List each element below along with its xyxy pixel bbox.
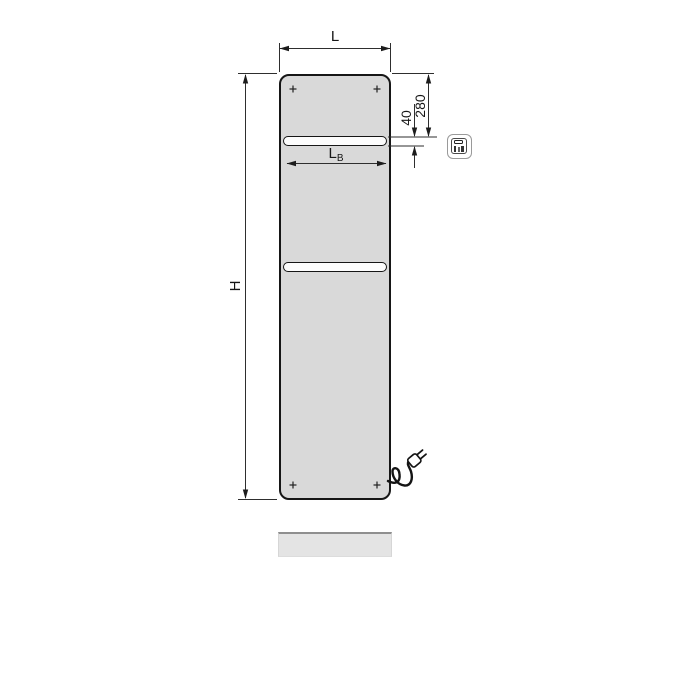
electric-plug-icon-pin-left	[454, 146, 457, 152]
arrow-down	[243, 490, 248, 500]
label-40: 40	[397, 105, 415, 131]
electric-plug-icon	[447, 134, 472, 159]
label-bar-length-subscript: B	[337, 153, 344, 164]
arrow-up	[426, 74, 431, 84]
arrow-left	[280, 46, 290, 51]
arrow-down	[426, 128, 431, 138]
dimension-width-L	[280, 43, 391, 72]
arrow-right	[377, 161, 387, 166]
electric-plug-icon-frame	[451, 138, 467, 155]
label-height-H: H	[227, 274, 245, 298]
dimension-linework	[0, 0, 700, 700]
bar-extension-lines	[388, 137, 437, 146]
arrow-left	[287, 161, 297, 166]
label-width-L: L	[323, 28, 347, 46]
label-bar-length-LB: LB	[316, 145, 356, 168]
label-bar-length-main: L	[328, 145, 336, 162]
arrow-right	[381, 46, 391, 51]
electric-plug-icon-head	[454, 140, 464, 144]
power-cord	[388, 448, 428, 485]
arrow-up	[412, 146, 417, 156]
electric-plug-icon-pin-right	[461, 146, 464, 152]
radiator-dimension-diagram: L H 280 40 LB	[0, 0, 700, 700]
electric-plug-icon-cable	[458, 147, 459, 152]
arrow-up	[243, 74, 248, 84]
plug-icon	[407, 448, 428, 468]
